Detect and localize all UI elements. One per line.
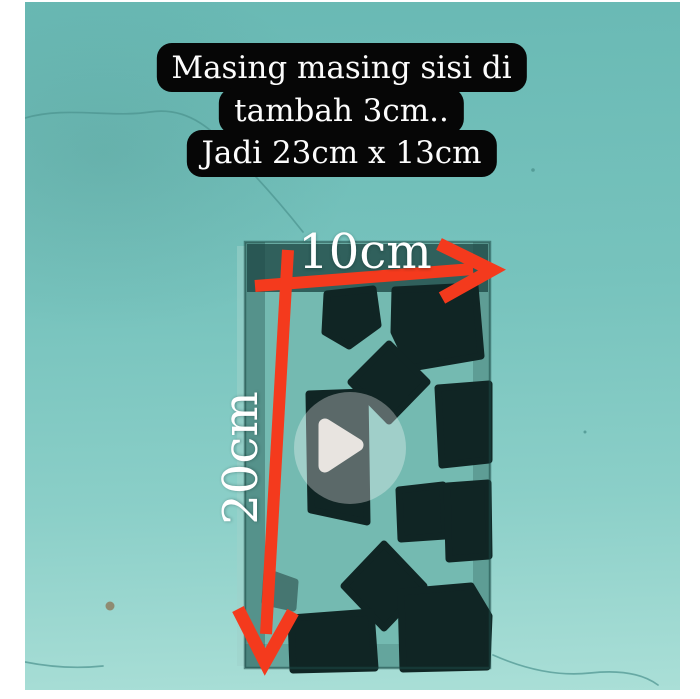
play-icon bbox=[294, 392, 406, 504]
width-measurement-label: 10cm bbox=[298, 228, 431, 276]
wall-speck bbox=[531, 168, 535, 172]
caption-sticker: Masing masing sisi di tambah 3cm.. Jadi … bbox=[156, 43, 526, 177]
wall-speck bbox=[584, 431, 587, 434]
caption-line-2: tambah 3cm.. bbox=[219, 88, 464, 135]
play-button[interactable] bbox=[294, 392, 406, 504]
height-measurement-label: 20cm bbox=[217, 391, 265, 524]
wall-pebble bbox=[106, 602, 115, 611]
post-page: Masing masing sisi di tambah 3cm.. Jadi … bbox=[0, 0, 700, 699]
caption-line-1: Masing masing sisi di bbox=[156, 43, 526, 92]
video-frame: Masing masing sisi di tambah 3cm.. Jadi … bbox=[25, 2, 680, 690]
caption-line-3: Jadi 23cm x 13cm bbox=[186, 130, 496, 177]
